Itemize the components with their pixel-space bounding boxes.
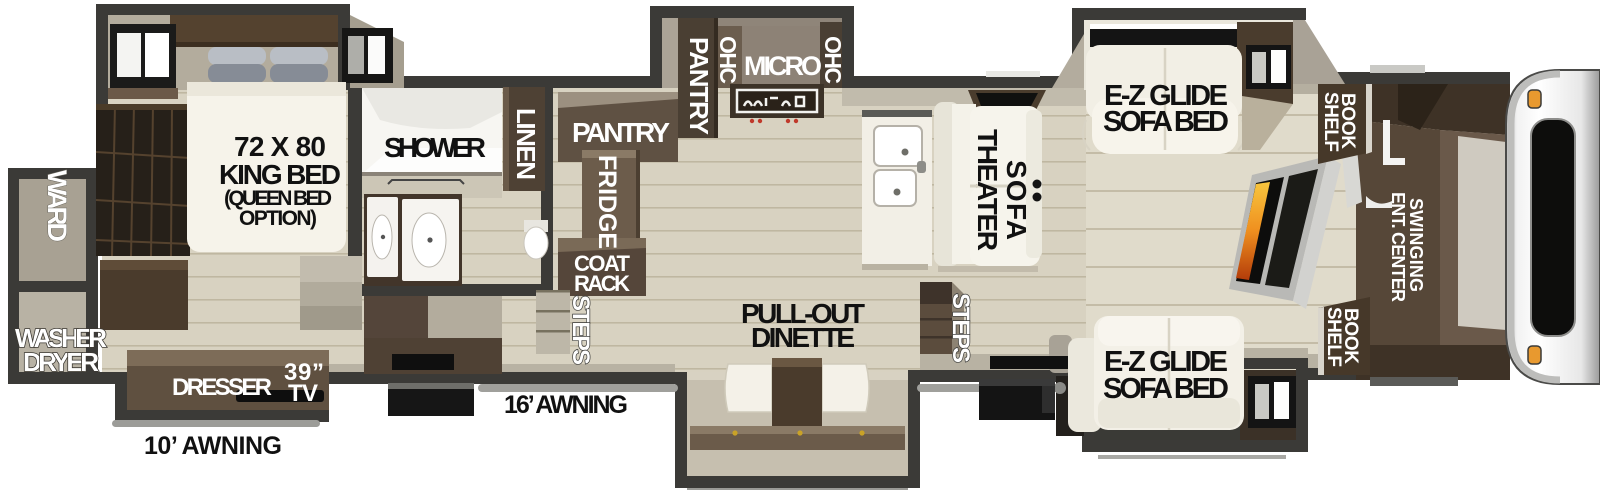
svg-text:SOFA BED: SOFA BED [1103, 106, 1229, 138]
svg-text:ENT. CENTER: ENT. CENTER [1388, 192, 1408, 302]
svg-text:72 X 80: 72 X 80 [234, 131, 326, 162]
svg-text:OHC: OHC [820, 36, 846, 84]
svg-text:10’ AWNING: 10’ AWNING [144, 432, 282, 460]
svg-text:PANTRY: PANTRY [572, 117, 670, 148]
svg-text:DRESSER: DRESSER [172, 374, 272, 401]
svg-text:WARD: WARD [42, 170, 72, 242]
svg-text:16’ AWNING: 16’ AWNING [504, 391, 628, 419]
svg-text:SHOWER: SHOWER [384, 132, 486, 163]
svg-text:SOFA: SOFA [1001, 160, 1032, 240]
svg-text:SOFA BED: SOFA BED [1103, 373, 1229, 405]
svg-text:MICRO: MICRO [744, 51, 822, 81]
svg-text:PANTRY: PANTRY [684, 37, 714, 135]
svg-text:OPTION): OPTION) [239, 207, 317, 230]
svg-text:TV: TV [288, 380, 318, 407]
svg-text:STEPS: STEPS [567, 295, 594, 365]
svg-text:RACK: RACK [574, 271, 630, 296]
svg-text:KING BED: KING BED [219, 159, 341, 190]
svg-text:SHELF: SHELF [1320, 92, 1341, 152]
svg-text:OHC: OHC [715, 36, 741, 84]
svg-text:DINETTE: DINETTE [751, 322, 855, 353]
svg-text:FRIDGE: FRIDGE [593, 155, 621, 249]
svg-text:SWINGING: SWINGING [1406, 198, 1426, 292]
svg-text:SHELF: SHELF [1323, 307, 1344, 367]
svg-text:THEATER: THEATER [972, 129, 1003, 251]
svg-text:STEPS: STEPS [947, 293, 974, 363]
svg-text:LINEN: LINEN [511, 108, 541, 180]
svg-text:DRYER: DRYER [23, 347, 99, 377]
